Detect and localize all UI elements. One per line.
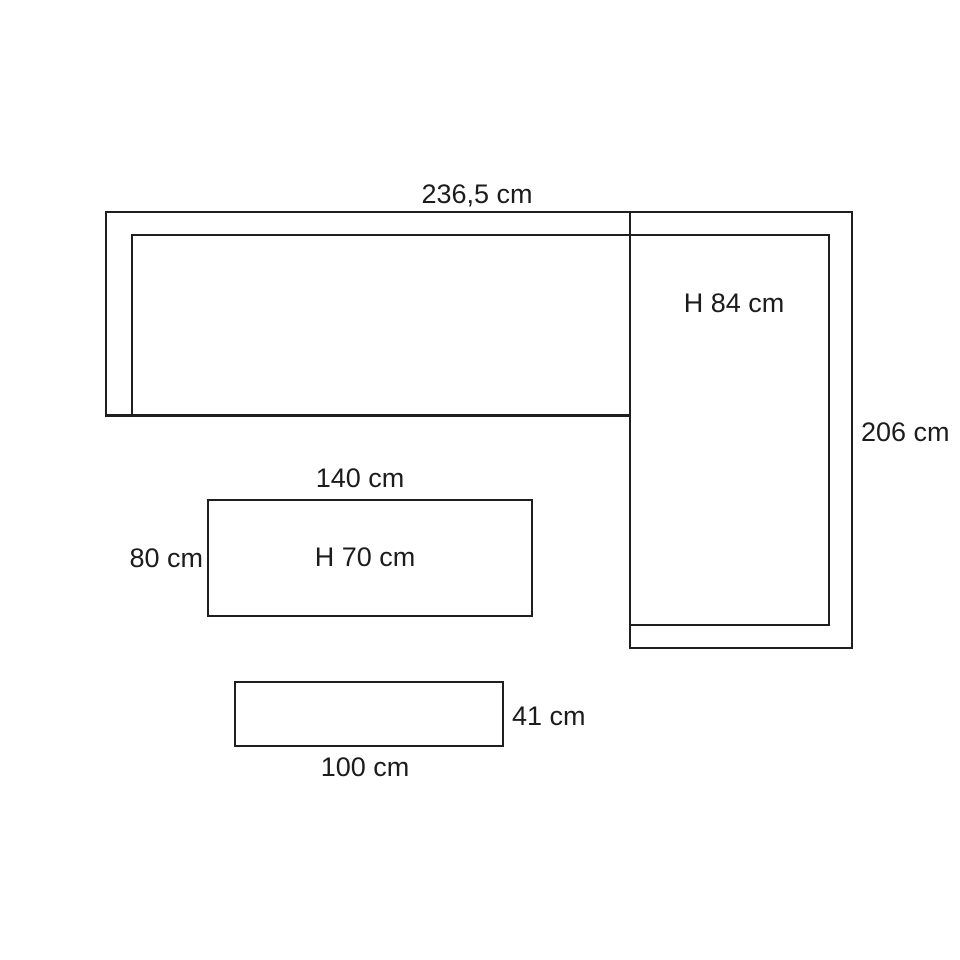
dimension-diagram: 236,5 cm H 84 cm 206 cm 140 cm 80 cm H 7… bbox=[0, 0, 960, 960]
sofa-width-label: 236,5 cm bbox=[377, 180, 577, 208]
sofa-depth-label: 206 cm bbox=[861, 418, 950, 446]
sofa-height-label: H 84 cm bbox=[634, 289, 834, 317]
bench-outline bbox=[234, 681, 504, 747]
sofa-inner-outline-left-arm bbox=[131, 234, 629, 417]
bench-width-label: 100 cm bbox=[265, 753, 465, 781]
bench-height-label: 41 cm bbox=[512, 702, 586, 730]
table-width-label: 140 cm bbox=[260, 464, 460, 492]
table-height-label: H 70 cm bbox=[265, 543, 465, 571]
table-depth-label: 80 cm bbox=[63, 544, 203, 572]
